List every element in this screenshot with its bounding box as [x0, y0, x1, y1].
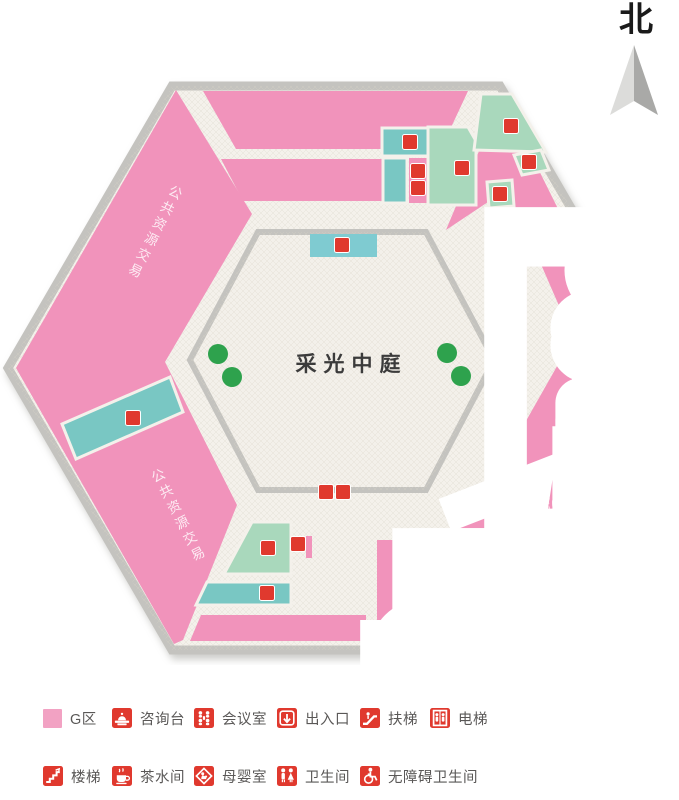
accessible-toilet-icon	[360, 766, 380, 786]
legend-item-stairs: 楼梯	[43, 766, 101, 786]
north-arrow-icon	[608, 43, 664, 117]
g-zone-swatch	[43, 709, 62, 728]
stairs-icon	[43, 766, 63, 786]
legend-item-toilet: 卫生间	[277, 766, 350, 786]
legend-label: G区	[70, 708, 97, 729]
legend-item-info-desk: 咨询台	[112, 708, 185, 728]
legend-item-exit: 出入口	[277, 708, 350, 728]
tree-icon	[208, 344, 228, 364]
legend-item-accessible-toilet: 无障碍卫生间	[360, 766, 478, 786]
info-desk-icon	[112, 708, 132, 728]
legend-item-g-zone: G区	[43, 708, 97, 728]
legend-item-nursing-room: 母婴室	[194, 766, 267, 786]
zone-bottom-strip	[190, 615, 366, 641]
exit-icon	[277, 708, 297, 728]
legend-label: 咨询台	[140, 708, 185, 729]
legend-label: 出入口	[305, 708, 350, 729]
north-label: 北	[601, 0, 671, 41]
legend-label: 扶梯	[388, 708, 418, 729]
floor-map: 采光中庭 公共资源交易公共资源交易预留区公共服务	[0, 0, 679, 665]
floor-map-page: 采光中庭 公共资源交易公共资源交易预留区公共服务 北 G区咨询台会议室出入口扶梯…	[0, 0, 679, 800]
compass: 北	[601, 0, 671, 117]
escalator-icon	[360, 708, 380, 728]
atrium-label: 采光中庭	[289, 348, 408, 378]
legend-label: 卫生间	[305, 766, 350, 787]
legend-item-escalator: 扶梯	[360, 708, 418, 728]
tree-icon	[222, 367, 242, 387]
tree-icon	[451, 366, 471, 386]
zone-top-strip-2	[221, 159, 382, 201]
legend-label: 电梯	[458, 708, 488, 729]
room-elevator-top	[383, 158, 407, 203]
legend: G区咨询台会议室出入口扶梯电梯楼梯茶水间母婴室卫生间无障碍卫生间	[0, 690, 679, 800]
legend-label: 无障碍卫生间	[388, 766, 478, 787]
nursing-room-icon	[194, 766, 214, 786]
legend-item-tea-room: 茶水间	[112, 766, 185, 786]
legend-label: 楼梯	[71, 766, 101, 787]
info-desk-counter	[306, 536, 312, 558]
legend-label: 茶水间	[140, 766, 185, 787]
meeting-room-icon	[194, 708, 214, 728]
tea-room-icon	[112, 766, 132, 786]
room-stairs-bottom	[196, 582, 291, 605]
elevator-icon	[430, 708, 450, 728]
legend-label: 母婴室	[222, 766, 267, 787]
legend-item-meeting-room: 会议室	[194, 708, 267, 728]
toilet-icon	[277, 766, 297, 786]
floor-map-canvas	[0, 0, 679, 665]
legend-label: 会议室	[222, 708, 267, 729]
tree-icon	[437, 343, 457, 363]
legend-item-elevator: 电梯	[430, 708, 488, 728]
